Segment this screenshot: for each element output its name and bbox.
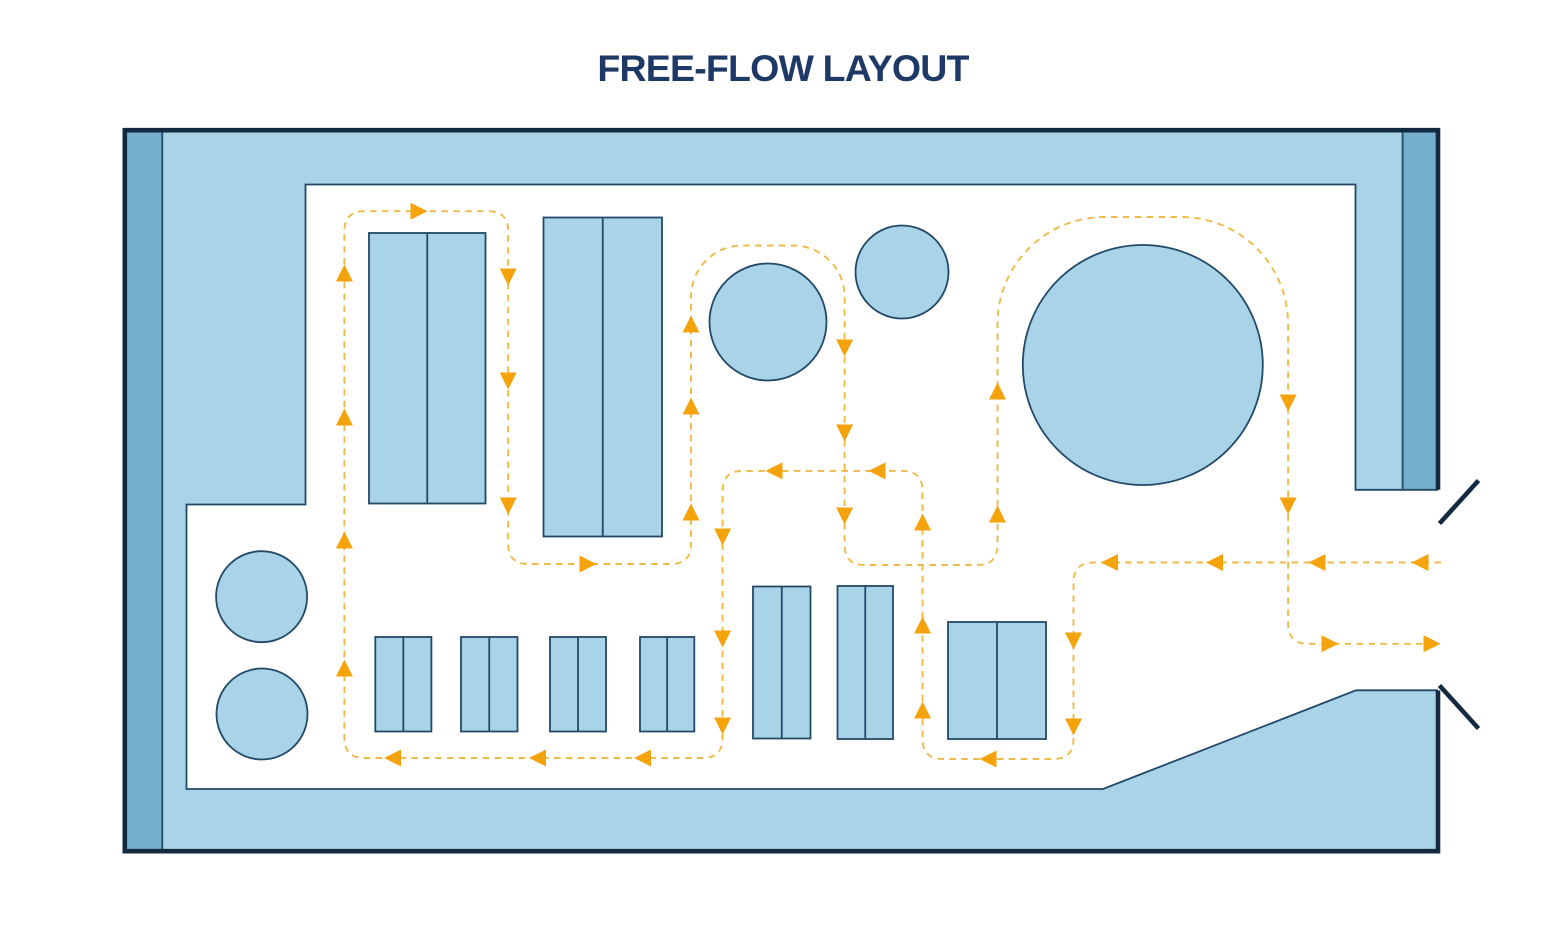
svg-text:FREE-FLOW LAYOUT: FREE-FLOW LAYOUT bbox=[597, 47, 969, 89]
